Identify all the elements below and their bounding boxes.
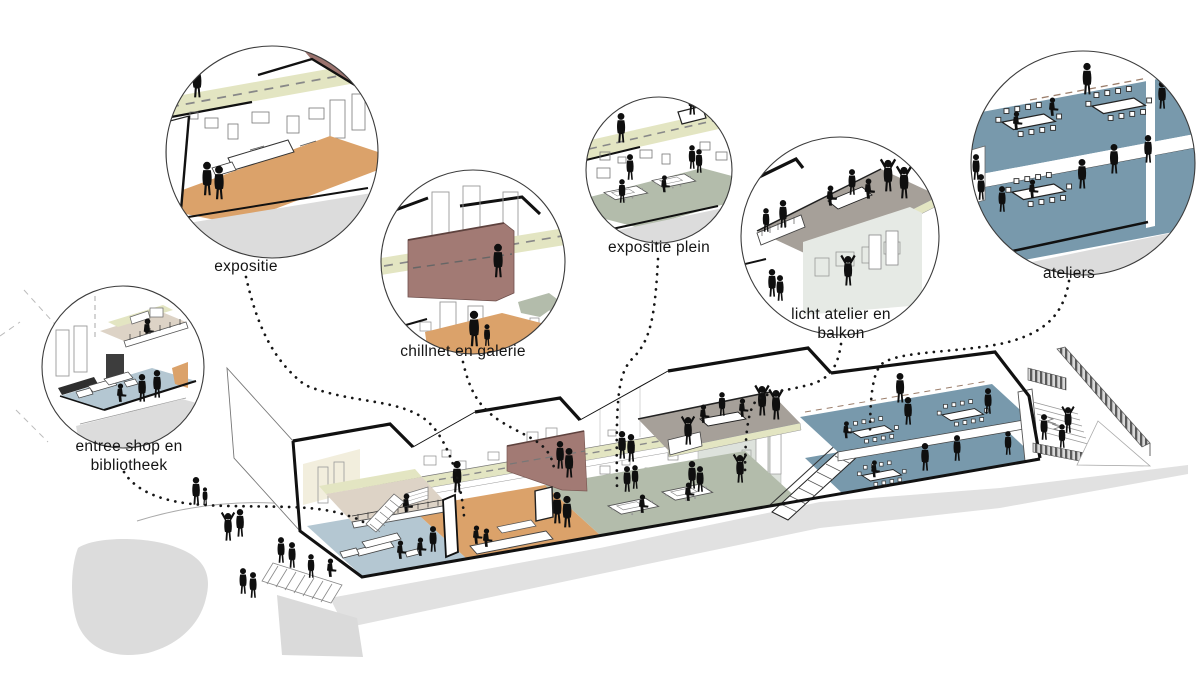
amphitheater: [1028, 347, 1150, 466]
callout-bubble-expositie-plein: [586, 87, 732, 243]
label-ateliers: ateliers: [1043, 264, 1095, 283]
label-expositie-plein: expositie plein: [608, 238, 710, 257]
axonometric-drawing: [0, 0, 1200, 675]
partition-wall: [443, 495, 458, 557]
callout-bubble-expositie: [166, 40, 378, 258]
label-expositie: expositie: [214, 257, 277, 276]
diagram-canvas: expositie chillnet en galerie expositie …: [0, 0, 1200, 675]
label-licht-atelier-en-balkon: licht atelier en balkon: [771, 305, 911, 343]
label-chillnet-en-galerie: chillnet en galerie: [400, 342, 525, 361]
callout-bubble-entree-shop-en-bibliotheek: [42, 286, 204, 448]
callout-bubble-ateliers: [971, 51, 1195, 275]
label-entree-shop-en-bibliotheek: entree shop en bibliotheek: [49, 437, 209, 475]
callout-bubble-chillnet-en-galerie: [381, 170, 565, 354]
plaza-lawn: [72, 539, 208, 655]
